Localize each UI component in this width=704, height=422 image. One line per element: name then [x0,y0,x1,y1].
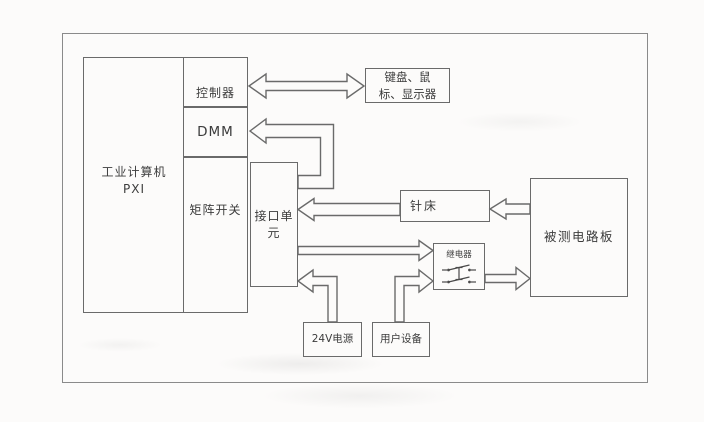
interface-unit-label-line1: 接口单 [254,208,293,224]
interface-unit-box: 接口单 元 [250,162,298,287]
keyboard-label-line2: 标、显示器 [379,86,437,103]
controller-label: 控制器 [196,85,235,101]
needle-bed-box: 针床 [400,190,490,222]
keyboard-label-line1: 键盘、鼠 [385,69,431,86]
dut-board-box: 被测电路板 [530,178,628,297]
dmm-label: DMM [197,123,234,141]
keyboard-mouse-display-box: 键盘、鼠 标、显示器 [365,68,450,103]
industrial-computer-label-line2: PXI [123,181,145,197]
dut-board-label: 被测电路板 [544,229,614,246]
relay-box: 继电器 [433,243,485,290]
relay-contact-icon [442,262,476,286]
user-equipment-label: 用户设备 [380,332,422,346]
power-24v-box: 24V电源 [303,322,362,357]
needle-bed-label: 针床 [410,198,438,214]
industrial-computer-label: 工业计算机 PXI [84,58,184,312]
controller-box: 控制器 [183,57,248,107]
relay-label: 继电器 [446,250,472,261]
matrix-switch-box: 矩阵开关 [183,157,248,313]
industrial-computer-label-line1: 工业计算机 [101,164,166,180]
user-equipment-box: 用户设备 [372,322,430,357]
power-24v-label: 24V电源 [312,332,354,346]
interface-unit-label-line2: 元 [267,225,280,241]
matrix-switch-label: 矩阵开关 [189,202,241,218]
block-diagram: 工业计算机 PXI 控制器 DMM 矩阵开关 接口单 元 键盘、鼠 标、显示器 … [0,0,704,422]
dmm-box: DMM [183,107,248,157]
